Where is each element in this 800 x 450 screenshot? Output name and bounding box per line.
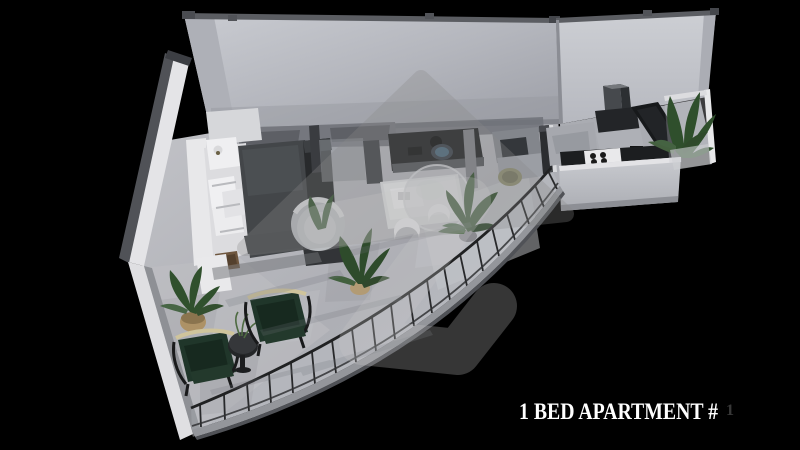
svg-text:1 BED APARTMENT #: 1 BED APARTMENT # bbox=[519, 399, 718, 424]
svg-text:1: 1 bbox=[726, 402, 734, 419]
